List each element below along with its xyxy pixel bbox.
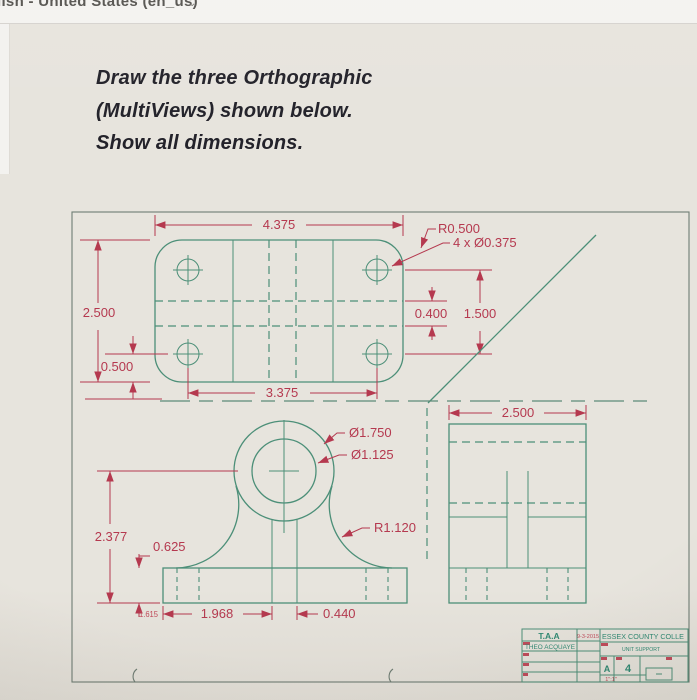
dim-hole-row-spacing: 1.500	[464, 306, 497, 321]
hidden-holes-front	[177, 568, 388, 603]
side-view-dimensions: 2.500	[449, 405, 586, 420]
title-block-drawing-title: UNIT SUPPORT	[622, 647, 661, 653]
dim-boss-inner-dia: Ø1.125	[351, 447, 394, 462]
hidden-holes-side	[466, 568, 568, 603]
orthographic-drawing: 4.375 2.500 0.500 3.375 R0.500 4 x Ø0.37…	[0, 0, 697, 700]
title-block-sheet-number: 4	[625, 663, 632, 675]
side-view	[449, 424, 586, 603]
title-block-date: 9-3-2015	[577, 634, 599, 640]
dim-hole-edge-offset: 0.500	[101, 359, 134, 374]
hole-bottom-left	[173, 339, 203, 369]
title-block-initials: T.A.A	[538, 631, 559, 641]
hole-top-left	[173, 255, 203, 285]
title-block-scale: 1":1"	[605, 677, 617, 683]
base-plate-front	[163, 568, 407, 603]
dim-side-depth: 2.500	[502, 405, 535, 420]
screen-photo: lish - United States (en_us) ⌄ Draw the …	[0, 0, 697, 700]
dim-web-width-top: 0.400	[415, 306, 448, 321]
title-block-sheet-size: A	[604, 664, 611, 674]
title-block-author: THEO ACQUAYE	[525, 644, 576, 651]
dim-top-height: 2.500	[83, 305, 116, 320]
web-edges-side	[507, 471, 528, 568]
title-block-institution: ESSEX COUNTY COLLE	[602, 632, 684, 641]
dim-small: 1.615	[139, 609, 158, 619]
dim-hole-spacing: 3.375	[266, 385, 299, 400]
hidden-web-horizontal	[155, 301, 403, 326]
hidden-web-vertical	[269, 240, 296, 382]
title-block: T.A.A 9-3-2015 THEO ACQUAYE ESSEX COUNTY…	[522, 629, 688, 683]
dim-fillet-radius: R1.120	[374, 520, 416, 535]
hidden-lines-side	[449, 442, 586, 503]
dim-web-width-front: 0.440	[323, 606, 356, 621]
dim-front-height: 2.377	[95, 529, 128, 544]
miter-line	[428, 235, 596, 403]
top-view	[155, 240, 403, 382]
dim-boss-outer-dia: Ø1.750	[349, 425, 392, 440]
fillet-left	[176, 486, 239, 568]
dim-corner-radius: R0.500	[438, 221, 480, 236]
web-edges-visible	[233, 240, 333, 382]
front-view-dimensions: 2.377 0.625 1.968 0.440 1.615 Ø1.750 Ø1.…	[95, 425, 416, 621]
hole-bottom-right	[362, 339, 392, 369]
dim-hole-callout: 4 x Ø0.375	[453, 235, 517, 250]
dim-base-thickness: 0.625	[153, 539, 186, 554]
projection-lines	[160, 235, 652, 560]
dim-top-width: 4.375	[263, 217, 296, 232]
dim-left-span: 1.968	[201, 606, 234, 621]
hole-top-right	[362, 255, 392, 285]
top-view-dimensions: 4.375 2.500 0.500 3.375 R0.500 4 x Ø0.37…	[80, 215, 517, 400]
